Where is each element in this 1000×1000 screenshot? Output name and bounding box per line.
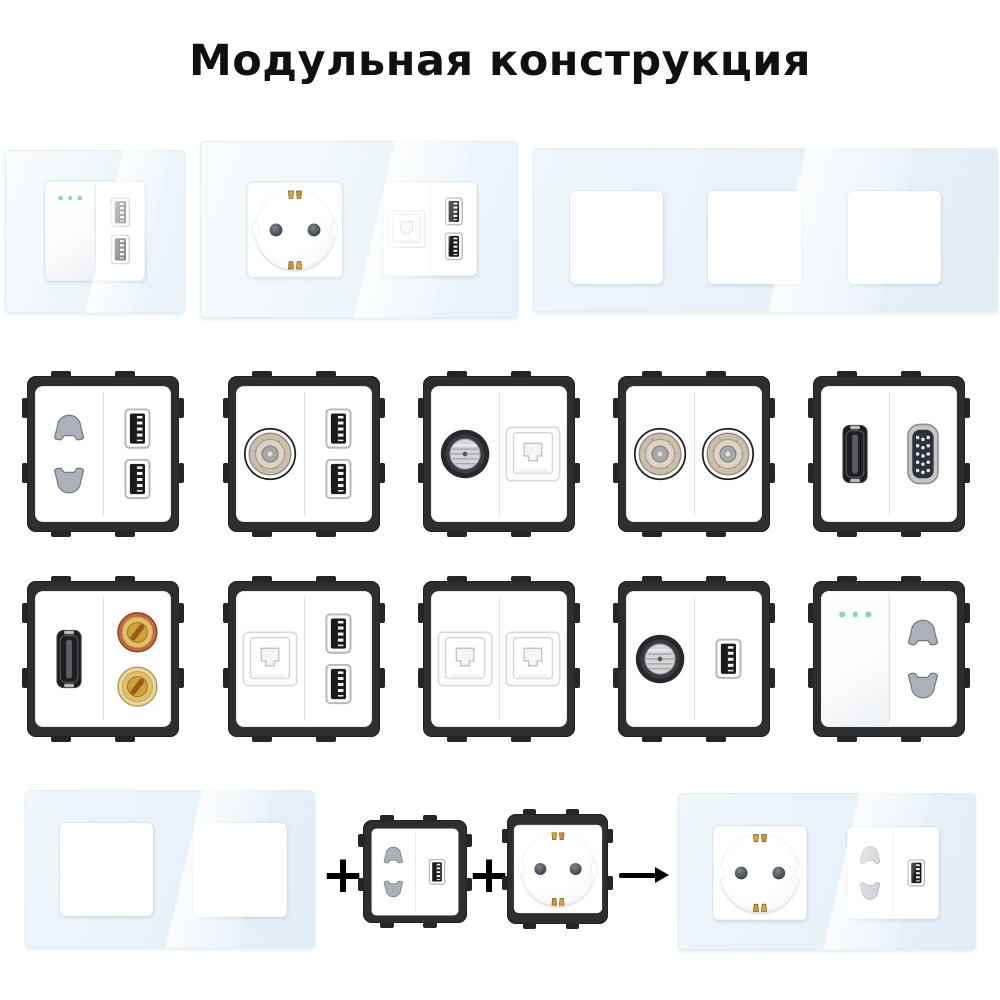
pin-hole xyxy=(307,223,320,236)
ground-clip-icon xyxy=(286,190,302,199)
glass-panel-2gang-schuko-pin2-usb xyxy=(678,793,976,950)
switch-rocker xyxy=(45,181,95,281)
mount-tab xyxy=(574,463,580,483)
empty-opening xyxy=(193,823,287,917)
device-sat-usb xyxy=(626,591,762,727)
mount-tab xyxy=(115,576,135,582)
mount-tab xyxy=(566,809,579,815)
device-rj45-usb2 xyxy=(236,591,372,727)
dual-usb-ports xyxy=(325,409,351,499)
schuko-socket xyxy=(247,182,342,277)
half-switch xyxy=(45,181,95,281)
face-divider xyxy=(694,597,695,722)
hdmi-port-icon xyxy=(55,629,82,689)
mount-tab xyxy=(769,398,775,418)
mount-tab xyxy=(901,576,921,582)
ethernet-socket-icon xyxy=(505,631,561,687)
device-rj45-rj45 xyxy=(431,591,567,727)
device-switch-usb2 xyxy=(45,181,145,281)
device-hdmi-audio2 xyxy=(35,591,171,727)
module-tv-usb2 xyxy=(228,376,380,532)
face-divider xyxy=(694,392,695,517)
mount-tab xyxy=(901,736,921,742)
mount-tab xyxy=(901,531,921,537)
hdmi-port-icon xyxy=(841,424,868,484)
mount-tab xyxy=(511,371,531,377)
panel-opening xyxy=(847,827,939,919)
mount-tab xyxy=(511,576,531,582)
mount-tab xyxy=(511,736,531,742)
face-divider xyxy=(304,392,305,517)
mount-tab xyxy=(613,463,619,483)
device-schuko xyxy=(513,825,601,913)
mount-tab xyxy=(769,603,775,623)
empty-opening xyxy=(848,191,941,284)
panel-opening xyxy=(45,181,145,281)
module-rj45-rj45 xyxy=(423,581,575,737)
mount-tab xyxy=(964,398,970,418)
led-dot xyxy=(68,196,72,200)
mount-tab xyxy=(447,531,467,537)
mount-tab xyxy=(316,531,336,537)
mount-tab xyxy=(642,371,662,377)
device-schuko xyxy=(247,182,342,277)
vga-port-icon xyxy=(906,423,939,485)
mount-tab xyxy=(769,463,775,483)
mount-tab xyxy=(574,668,580,688)
half-pin2 xyxy=(889,591,957,727)
usb-port-icon xyxy=(325,664,351,704)
face-divider xyxy=(893,831,894,916)
mount-tab xyxy=(607,829,613,843)
module-tv-tv xyxy=(618,376,770,532)
mount-tab xyxy=(574,398,580,418)
ethernet-socket-icon xyxy=(505,426,561,482)
mount-tab xyxy=(837,371,857,377)
half-hdmi xyxy=(35,591,103,727)
mount-tab xyxy=(808,463,814,483)
device-tv-usb2 xyxy=(236,386,372,522)
module-pin2-usb xyxy=(363,820,467,923)
usb-port-icon xyxy=(325,409,351,449)
half-usb xyxy=(415,828,458,915)
side-notch xyxy=(252,223,257,235)
panel-opening xyxy=(713,826,807,920)
mount-tab xyxy=(418,668,424,688)
mount-tab xyxy=(613,668,619,688)
glass-panel-1gang-switch-dual-usb xyxy=(5,150,185,313)
device-pin2-usb2 xyxy=(35,386,171,522)
mount-tab xyxy=(223,668,229,688)
module-rj45-usb2 xyxy=(228,581,380,737)
half-rj45 xyxy=(236,591,304,727)
mount-tab xyxy=(706,576,726,582)
mount-tab xyxy=(523,923,536,929)
mount-tab xyxy=(418,463,424,483)
usb-port-icon xyxy=(428,859,445,885)
mount-tab xyxy=(115,371,135,377)
mount-tab xyxy=(706,736,726,742)
mount-tab xyxy=(22,398,28,418)
half-usb xyxy=(893,827,939,919)
usb-port-icon xyxy=(444,232,462,260)
mount-tab xyxy=(379,463,385,483)
schuko-socket xyxy=(513,825,601,913)
module-hdmi-vga xyxy=(813,376,965,532)
half-rj45 xyxy=(499,591,567,727)
face-divider xyxy=(499,597,500,722)
mount-tab xyxy=(316,371,336,377)
ground-clip-icon xyxy=(286,260,302,269)
dual-usb-ports xyxy=(124,409,150,499)
empty-opening xyxy=(60,823,153,916)
mount-tab xyxy=(837,576,857,582)
panel-opening xyxy=(383,182,477,276)
mount-tab xyxy=(22,463,28,483)
face-divider xyxy=(95,185,96,277)
half-rj45 xyxy=(499,386,567,522)
device-rj45-usb2 xyxy=(383,182,477,276)
mount-tab xyxy=(51,371,71,377)
face-divider xyxy=(103,392,104,517)
schuko-socket xyxy=(713,826,807,920)
mount-tab xyxy=(964,668,970,688)
mount-tab xyxy=(115,531,135,537)
usb-port-icon xyxy=(110,235,129,265)
usb-port-icon xyxy=(325,459,351,499)
half-usb2 xyxy=(430,182,477,276)
mount-tab xyxy=(642,576,662,582)
face-divider xyxy=(889,392,890,517)
half-rj45 xyxy=(383,182,430,276)
led-dot xyxy=(839,611,844,616)
page-title: Модульная конструкция xyxy=(0,36,1000,86)
half-usb2 xyxy=(103,386,171,522)
mount-tab xyxy=(642,531,662,537)
mount-tab xyxy=(613,398,619,418)
usb-port-icon xyxy=(325,614,351,654)
mount-tab xyxy=(511,531,531,537)
device-tv-tv xyxy=(626,386,762,522)
half-pin2 xyxy=(847,827,893,919)
mount-tab xyxy=(358,834,364,847)
two-pin-socket-icon xyxy=(379,842,408,902)
mount-tab xyxy=(178,603,184,623)
mount-tab xyxy=(523,809,536,815)
mount-tab xyxy=(223,463,229,483)
empty-opening xyxy=(570,191,663,284)
face-divider xyxy=(103,597,104,722)
two-pin-socket-icon xyxy=(47,407,92,500)
module-pin2-usb2 xyxy=(27,376,179,532)
two-pin-socket-icon xyxy=(855,841,885,904)
mount-tab xyxy=(379,603,385,623)
mount-tab xyxy=(502,876,508,890)
mount-tab xyxy=(252,371,272,377)
empty-opening xyxy=(708,191,801,284)
mount-tab xyxy=(223,603,229,623)
mount-tab xyxy=(808,398,814,418)
device-schuko xyxy=(713,826,807,920)
usb-port-icon xyxy=(124,459,150,499)
audio-binding-posts xyxy=(116,611,158,707)
face-divider xyxy=(304,597,305,722)
tv-antenna-socket-icon xyxy=(633,427,687,481)
mount-tab xyxy=(502,829,508,843)
half-pin2 xyxy=(35,386,103,522)
led-indicator xyxy=(839,611,871,616)
ethernet-socket-icon xyxy=(242,631,298,687)
audio-jack-icon xyxy=(116,665,158,707)
dual-usb-ports xyxy=(325,614,351,704)
side-notch xyxy=(518,863,523,874)
right-arrow-icon xyxy=(619,869,669,881)
half-hdmi xyxy=(821,386,889,522)
mount-tab xyxy=(418,603,424,623)
usb-port-icon xyxy=(907,859,925,886)
mount-tab xyxy=(447,576,467,582)
mount-tab xyxy=(252,531,272,537)
usb-port-icon xyxy=(110,198,129,228)
module-switch-pin2 xyxy=(813,581,965,737)
pin-hole xyxy=(735,867,748,880)
face-divider xyxy=(415,832,416,912)
mount-tab xyxy=(22,603,28,623)
led-dot xyxy=(865,611,870,616)
half-audio2 xyxy=(103,591,171,727)
half-pin2 xyxy=(372,828,415,915)
mount-tab xyxy=(380,815,394,821)
mount-tab xyxy=(380,922,394,928)
mount-tab xyxy=(466,878,472,891)
pin-hole xyxy=(772,867,785,880)
module-sat-usb xyxy=(618,581,770,737)
mount-tab xyxy=(358,878,364,891)
side-notch xyxy=(796,867,801,879)
mount-tab xyxy=(447,371,467,377)
mount-tab xyxy=(613,603,619,623)
face-divider xyxy=(430,186,431,272)
product-image-canvas: Модульная конструкция + + xyxy=(0,0,1000,1000)
glass-panel-3gang-empty xyxy=(533,148,998,312)
pin-hole xyxy=(569,863,581,875)
mount-tab xyxy=(642,736,662,742)
module-hdmi-audio2 xyxy=(27,581,179,737)
half-rj45 xyxy=(431,591,499,727)
module-schuko xyxy=(507,814,608,924)
two-pin-socket-icon xyxy=(901,612,946,705)
ethernet-socket-icon xyxy=(387,210,426,249)
mount-tab xyxy=(964,463,970,483)
device-pin2-usb xyxy=(372,828,459,915)
mount-tab xyxy=(379,668,385,688)
mount-tab xyxy=(566,923,579,929)
device-sat-rj45 xyxy=(431,386,567,522)
mount-tab xyxy=(51,531,71,537)
mount-tab xyxy=(423,922,437,928)
mount-tab xyxy=(574,603,580,623)
pin-hole xyxy=(534,863,546,875)
mount-tab xyxy=(115,736,135,742)
mount-tab xyxy=(418,398,424,418)
led-dot xyxy=(58,196,62,200)
half-sat xyxy=(626,591,694,727)
tv-antenna-socket-icon xyxy=(243,427,297,481)
half-tv xyxy=(626,386,694,522)
mount-tab xyxy=(423,815,437,821)
mount-tab xyxy=(223,398,229,418)
side-notch xyxy=(718,867,723,879)
satellite-f-connector-icon xyxy=(633,632,687,686)
led-indicator xyxy=(58,196,81,200)
mount-tab xyxy=(808,603,814,623)
mount-tab xyxy=(178,463,184,483)
mount-tab xyxy=(706,371,726,377)
face-divider xyxy=(499,392,500,517)
mount-tab xyxy=(252,576,272,582)
mount-tab xyxy=(178,398,184,418)
panel-opening xyxy=(247,182,342,277)
mount-tab xyxy=(964,603,970,623)
dual-usb-ports xyxy=(110,198,129,264)
ethernet-socket-icon xyxy=(437,631,493,687)
socket-circle xyxy=(720,833,799,912)
usb-port-icon xyxy=(715,639,741,679)
mount-tab xyxy=(51,736,71,742)
mount-tab xyxy=(466,834,472,847)
mount-tab xyxy=(22,668,28,688)
face-divider xyxy=(889,597,890,722)
led-dot xyxy=(852,611,857,616)
side-notch xyxy=(331,223,336,235)
mount-tab xyxy=(837,531,857,537)
mount-tab xyxy=(901,371,921,377)
device-hdmi-vga xyxy=(821,386,957,522)
socket-circle xyxy=(254,189,334,269)
usb-port-icon xyxy=(444,198,462,226)
plus-icon: + xyxy=(467,847,511,903)
mount-tab xyxy=(769,668,775,688)
mount-tab xyxy=(316,576,336,582)
ground-clip-icon xyxy=(752,904,768,913)
mount-tab xyxy=(808,668,814,688)
mount-tab xyxy=(706,531,726,537)
half-vga xyxy=(889,386,957,522)
mount-tab xyxy=(837,736,857,742)
ground-clip-icon xyxy=(550,898,565,906)
device-switch-pin2 xyxy=(821,591,957,727)
side-notch xyxy=(592,863,597,874)
half-usb2 xyxy=(304,386,372,522)
glass-panel-2gang-empty xyxy=(25,790,315,948)
mount-tab xyxy=(252,736,272,742)
switch-rocker xyxy=(821,591,889,727)
usb-port-icon xyxy=(124,409,150,449)
half-usb2 xyxy=(95,181,145,281)
ground-clip-icon xyxy=(752,834,768,843)
audio-jack-icon xyxy=(116,611,158,653)
mount-tab xyxy=(316,736,336,742)
satellite-f-connector-icon xyxy=(438,427,492,481)
mount-tab xyxy=(607,876,613,890)
dual-usb-ports xyxy=(444,198,462,260)
mount-tab xyxy=(51,576,71,582)
half-tv xyxy=(236,386,304,522)
half-switch xyxy=(821,591,889,727)
device-pin2-usb xyxy=(847,827,939,919)
led-dot xyxy=(78,196,82,200)
ground-clip-icon xyxy=(550,832,565,840)
mount-tab xyxy=(379,398,385,418)
half-usb xyxy=(694,591,762,727)
plus-icon: + xyxy=(321,847,365,903)
half-sat xyxy=(431,386,499,522)
half-tv xyxy=(694,386,762,522)
mount-tab xyxy=(447,736,467,742)
pin-hole xyxy=(269,223,282,236)
module-sat-rj45 xyxy=(423,376,575,532)
tv-antenna-socket-icon xyxy=(701,427,755,481)
mount-tab xyxy=(178,668,184,688)
socket-circle xyxy=(520,832,594,906)
glass-panel-2gang-schuko-ethernet-dual-usb xyxy=(200,141,518,318)
half-usb2 xyxy=(304,591,372,727)
